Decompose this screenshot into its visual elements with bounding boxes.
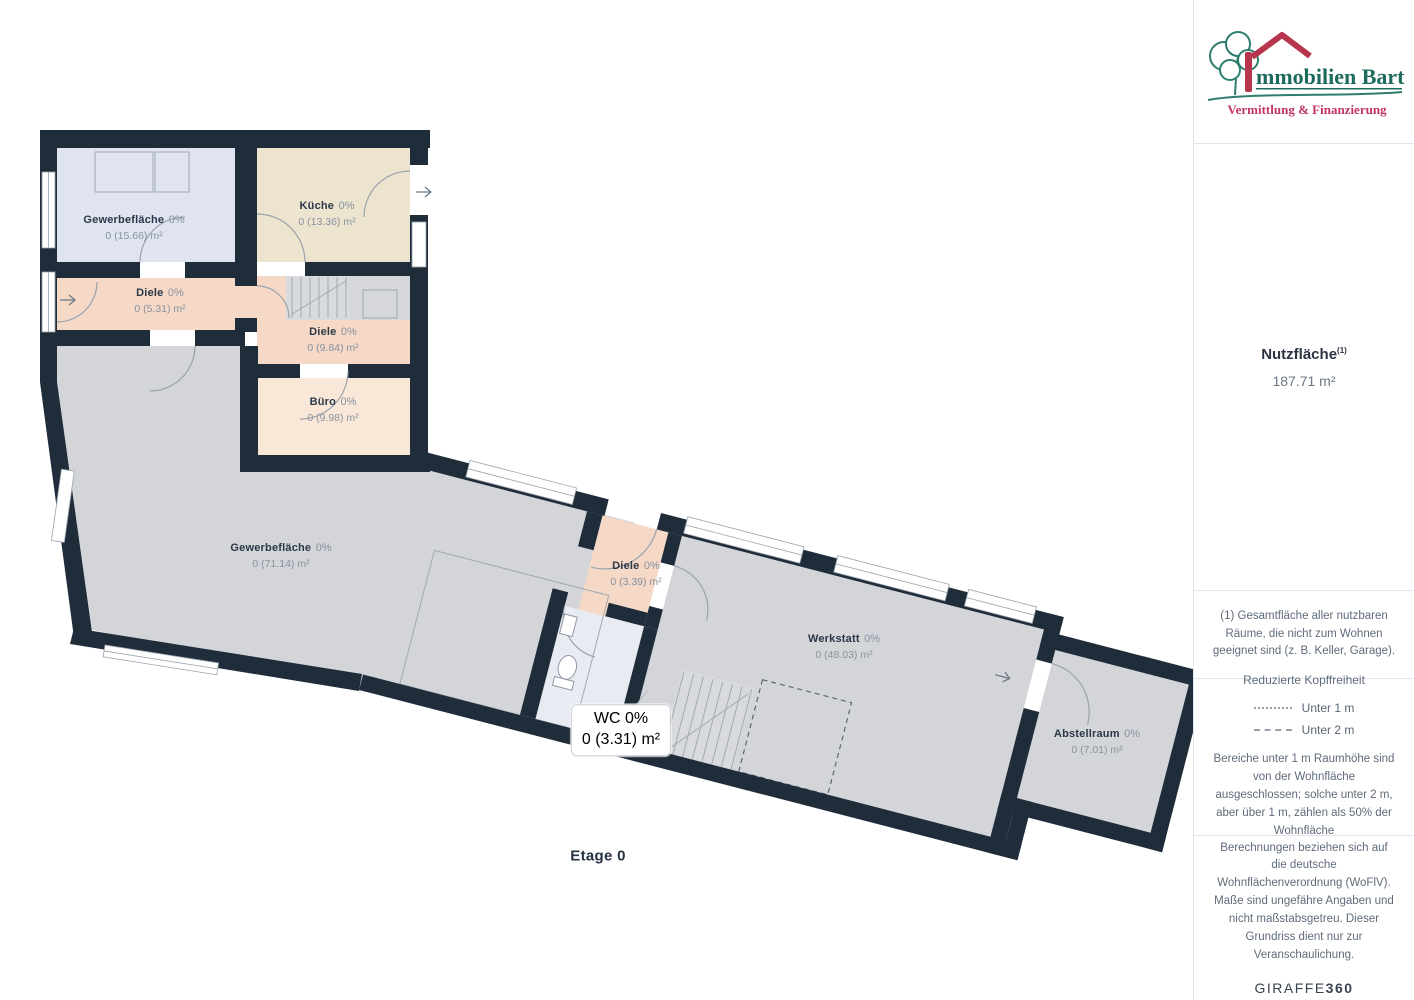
- disclaimer-text: Berechnungen beziehen sich auf die deuts…: [1211, 840, 1397, 965]
- company-logo: mmobilien Bart Vermittlung & Finanzierun…: [1194, 0, 1414, 143]
- footnote-section: (1) Gesamtfläche aller nutzbaren Räume, …: [1194, 590, 1414, 678]
- info-sidebar: mmobilien Bart Vermittlung & Finanzierun…: [1193, 0, 1414, 1000]
- room-label-buero: Büro 0% 0 (9.98) m²: [307, 391, 358, 425]
- floor-label: Etage 0: [570, 848, 625, 865]
- legend-item-label: Unter 2 m: [1302, 723, 1355, 737]
- dotted-line-icon: [1254, 707, 1292, 709]
- room-pct: 0%: [168, 287, 184, 299]
- room-name: Diele: [612, 560, 639, 572]
- summary-value: 187.71 m²: [1272, 373, 1335, 389]
- summary-label: Nutzfläche: [1261, 346, 1337, 363]
- room-label-gewerbeflaeche-1: Gewerbefläche 0% 0 (15.66) m²: [83, 209, 184, 243]
- room-name: Diele: [309, 326, 336, 338]
- room-area: 0 (3.39) m²: [610, 576, 661, 590]
- room-pct: 0%: [341, 396, 357, 408]
- room-area: 0 (15.66) m²: [83, 230, 184, 244]
- room-pct: 0%: [341, 326, 357, 338]
- room-name: Küche: [300, 200, 335, 212]
- room-name: Diele: [136, 287, 163, 299]
- legend-note: Bereiche unter 1 m Raumhöhe sind von der…: [1211, 751, 1397, 840]
- room-area: 0 (9.84) m²: [307, 342, 358, 356]
- logo-section: mmobilien Bart Vermittlung & Finanzierun…: [1194, 0, 1414, 143]
- room-name: Werkstatt: [808, 633, 860, 645]
- room-area: 0 (48.03) m²: [808, 649, 880, 663]
- room-pct: 0%: [339, 200, 355, 212]
- room-label-diele-2: Diele 0% 0 (9.84) m²: [307, 321, 358, 355]
- room-label-kueche: Küche 0% 0 (13.36) m²: [298, 195, 355, 229]
- logo-tagline: Vermittlung & Finanzierung: [1227, 102, 1387, 117]
- logo-underline: [1256, 88, 1402, 90]
- legend-section: Reduzierte Kopffreiheit Unter 1 m Unter …: [1194, 678, 1414, 835]
- legend-item-under-2m: Unter 2 m: [1254, 723, 1355, 737]
- room-pct: 0%: [169, 214, 185, 226]
- room-name: Büro: [310, 396, 336, 408]
- room-area: 0 (5.31) m²: [134, 303, 185, 317]
- room-area: 0 (9.98) m²: [307, 412, 358, 426]
- room-label-gewerbeflaeche-2: Gewerbefläche 0% 0 (71.14) m²: [230, 537, 331, 571]
- room-label-diele-1: Diele 0% 0 (5.31) m²: [134, 282, 185, 316]
- floorplan-page: Gewerbefläche 0% 0 (15.66) m² Küche 0% 0…: [0, 0, 1414, 1000]
- logo-brand-text: mmobilien Bart: [1256, 64, 1405, 89]
- room-name: Gewerbefläche: [230, 542, 311, 554]
- footnote-text: (1) Gesamtfläche aller nutzbaren Räume, …: [1211, 608, 1397, 661]
- summary-title: Nutzfläche(1): [1261, 346, 1347, 363]
- logo-roof-icon: [1252, 35, 1310, 57]
- floorplan-canvas: Gewerbefläche 0% 0 (15.66) m² Küche 0% 0…: [0, 0, 1193, 1000]
- room-name: WC: [594, 710, 621, 727]
- legend-title: Reduzierte Kopffreiheit: [1243, 673, 1365, 687]
- logo-initial-bar: [1245, 52, 1252, 92]
- legend-item-under-1m: Unter 1 m: [1254, 701, 1355, 715]
- room-area: 0 (3.31) m²: [582, 730, 660, 751]
- vendor-logo: GIRAFFE360: [1254, 980, 1353, 996]
- summary-footnote-marker: (1): [1337, 346, 1347, 355]
- room-label-diele-3: Diele 0% 0 (3.39) m²: [610, 555, 661, 589]
- room-area: 0 (7.01) m²: [1054, 744, 1140, 758]
- room-label-abstellraum: Abstellraum 0% 0 (7.01) m²: [1054, 723, 1140, 757]
- room-pct: 0%: [625, 710, 648, 727]
- room-label-werkstatt: Werkstatt 0% 0 (48.03) m²: [808, 628, 880, 662]
- legal-section: Berechnungen beziehen sich auf die deuts…: [1194, 835, 1414, 1000]
- room-pct: 0%: [1124, 728, 1140, 740]
- room-pct: 0%: [864, 633, 880, 645]
- wing-rotated: [359, 448, 1193, 895]
- logo-swoosh: [1208, 92, 1402, 100]
- room-pct: 0%: [316, 542, 332, 554]
- room-name: Abstellraum: [1054, 728, 1120, 740]
- room-area: 0 (13.36) m²: [298, 216, 355, 230]
- dashed-line-icon: [1254, 729, 1292, 731]
- room-area: 0 (71.14) m²: [230, 558, 331, 572]
- vendor-name: GIRAFFE: [1254, 980, 1325, 996]
- legend-item-label: Unter 1 m: [1302, 701, 1355, 715]
- room-label-wc-callout: WC 0% 0 (3.31) m²: [571, 704, 671, 756]
- room-pct: 0%: [644, 560, 660, 572]
- summary-section: Nutzfläche(1) 187.71 m²: [1194, 143, 1414, 590]
- room-name: Gewerbefläche: [83, 214, 164, 226]
- vendor-suffix: 360: [1326, 980, 1354, 996]
